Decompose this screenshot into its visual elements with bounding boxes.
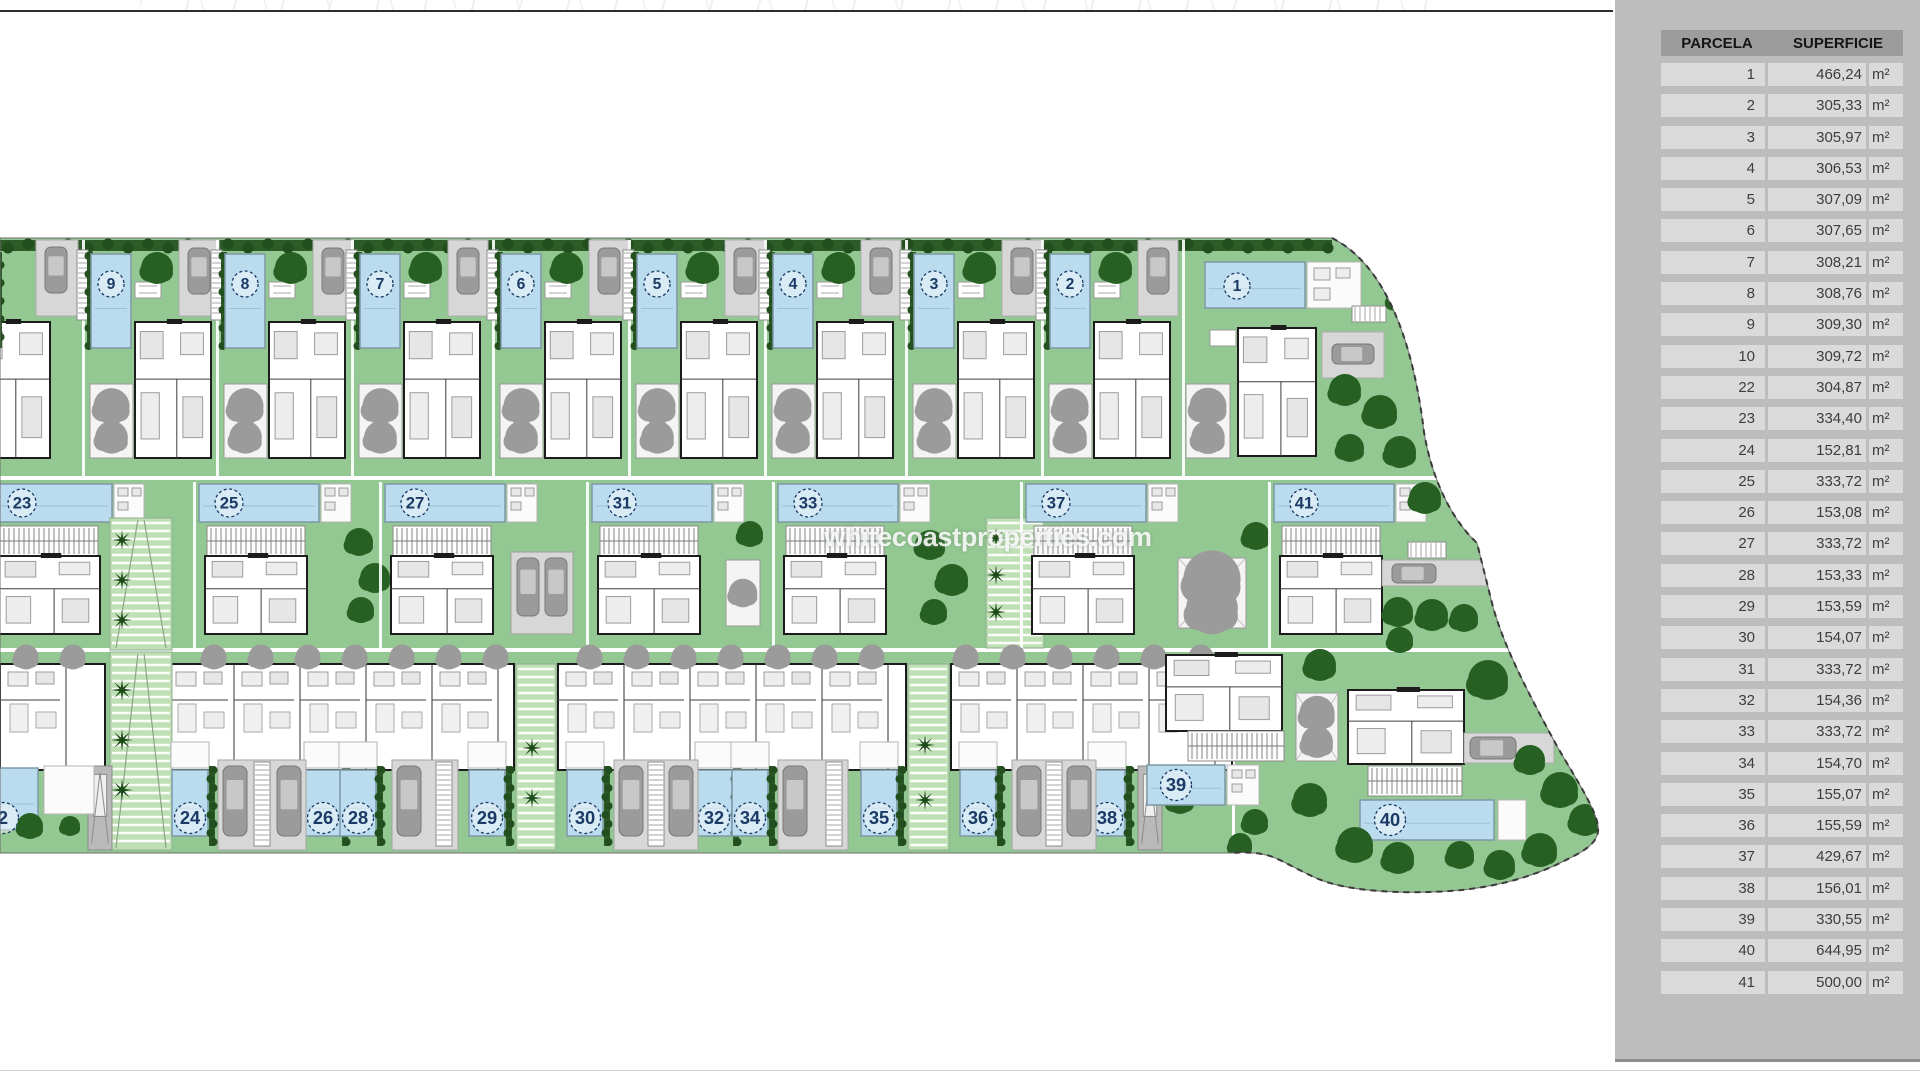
parcel-label: 26 — [308, 803, 339, 834]
parcel-label: 2 — [1057, 271, 1083, 297]
table-row: 40644,95m² — [1661, 939, 1903, 962]
table-row: 28153,33m² — [1661, 564, 1903, 587]
parcel-label: 4 — [780, 271, 806, 297]
parcela-cell: 5 — [1661, 188, 1765, 211]
car-icon — [322, 248, 344, 294]
palm-tree-icon — [111, 729, 133, 751]
superficie-cell: 304,87 — [1768, 376, 1866, 399]
palm-tree-icon — [915, 790, 935, 810]
superficie-cell: 308,76 — [1768, 282, 1866, 305]
palm-tree-icon — [112, 570, 132, 590]
parcel-label: 23 — [8, 489, 36, 517]
superficie-cell: 154,07 — [1768, 626, 1866, 649]
svg-text:9: 9 — [107, 276, 116, 293]
unit-cell: m² — [1869, 126, 1903, 149]
unit-cell: m² — [1869, 595, 1903, 618]
unit-cell: m² — [1869, 282, 1903, 305]
table-row: 3305,97m² — [1661, 126, 1903, 149]
superficie-cell: 429,67 — [1768, 845, 1866, 868]
col-header-parcela: PARCELA — [1661, 35, 1773, 52]
parcela-cell: 40 — [1661, 939, 1765, 962]
parcela-table: PARCELA SUPERFICIE 1466,24m²2305,33m²330… — [1661, 30, 1903, 1002]
parcel-label: 41 — [1290, 489, 1318, 517]
car-icon — [1470, 737, 1516, 759]
unit-cell: m² — [1869, 345, 1903, 368]
parcela-cell: 30 — [1661, 626, 1765, 649]
svg-text:3: 3 — [930, 276, 939, 293]
parcela-cell: 34 — [1661, 752, 1765, 775]
parcel-label: 6 — [508, 271, 534, 297]
svg-text:8: 8 — [241, 276, 250, 293]
parcela-cell: 38 — [1661, 877, 1765, 900]
svg-text:31: 31 — [613, 493, 632, 512]
unit-cell: m² — [1869, 251, 1903, 274]
parcel-label: 7 — [367, 271, 393, 297]
unit-cell: m² — [1869, 219, 1903, 242]
table-row: 10309,72m² — [1661, 345, 1903, 368]
car-icon — [734, 248, 756, 294]
parcela-cell: 2 — [1661, 94, 1765, 117]
svg-text:35: 35 — [869, 807, 889, 828]
palm-tree-icon — [111, 679, 133, 701]
pool — [1205, 262, 1305, 308]
unit-cell: m² — [1869, 501, 1903, 524]
svg-text:39: 39 — [1166, 774, 1186, 795]
parcela-cell: 28 — [1661, 564, 1765, 587]
parcel-label: 35 — [864, 803, 895, 834]
unit-cell: m² — [1869, 188, 1903, 211]
unit-cell: m² — [1869, 658, 1903, 681]
site-plan: 9876543212325273133374124262829303234353… — [0, 0, 1615, 1080]
unit-cell: m² — [1869, 814, 1903, 837]
svg-text:5: 5 — [653, 276, 662, 293]
superficie-cell: 154,70 — [1768, 752, 1866, 775]
superficie-cell: 333,72 — [1768, 720, 1866, 743]
superficie-cell: 305,33 — [1768, 94, 1866, 117]
parcela-cell: 39 — [1661, 908, 1765, 931]
parcel-label: 36 — [963, 803, 994, 834]
svg-text:34: 34 — [740, 807, 761, 828]
svg-text:25: 25 — [220, 493, 239, 512]
parcela-cell: 3 — [1661, 126, 1765, 149]
pool — [360, 254, 400, 348]
svg-text:41: 41 — [1295, 493, 1314, 512]
parcel-label: 33 — [794, 489, 822, 517]
parcel-label: 37 — [1042, 489, 1070, 517]
unit-cell: m² — [1869, 313, 1903, 336]
car-icon — [188, 248, 210, 294]
parcela-cell: 1 — [1661, 63, 1765, 86]
parcel-label: 1 — [1224, 273, 1250, 299]
parcela-cell: 25 — [1661, 470, 1765, 493]
table-row: 22304,87m² — [1661, 376, 1903, 399]
superficie-cell: 156,01 — [1768, 877, 1866, 900]
car-icon — [783, 766, 807, 836]
car-icon — [545, 558, 567, 616]
superficie-cell: 154,36 — [1768, 689, 1866, 712]
table-header-row: PARCELA SUPERFICIE — [1661, 30, 1903, 56]
superficie-cell: 308,21 — [1768, 251, 1866, 274]
svg-text:29: 29 — [477, 807, 497, 828]
palm-tree-icon — [986, 565, 1006, 585]
unit-cell: m² — [1869, 720, 1903, 743]
table-row: 4306,53m² — [1661, 157, 1903, 180]
superficie-cell: 305,97 — [1768, 126, 1866, 149]
svg-text:38: 38 — [1097, 807, 1117, 828]
parcela-cell: 36 — [1661, 814, 1765, 837]
pool — [773, 254, 813, 348]
parcela-cell: 23 — [1661, 407, 1765, 430]
parcela-cell: 9 — [1661, 313, 1765, 336]
car-icon — [277, 766, 301, 836]
svg-text:23: 23 — [13, 493, 32, 512]
svg-text:2: 2 — [0, 807, 8, 828]
palm-tree-icon — [522, 738, 542, 758]
bottom-rule — [0, 1070, 1920, 1071]
table-row: 37429,67m² — [1661, 845, 1903, 868]
parcela-cell: 32 — [1661, 689, 1765, 712]
palm-tree-icon — [112, 530, 132, 550]
palm-tree-icon — [986, 602, 1006, 622]
table-row: 35155,07m² — [1661, 783, 1903, 806]
car-icon — [517, 558, 539, 616]
svg-text:40: 40 — [1380, 809, 1400, 830]
parcela-cell: 37 — [1661, 845, 1765, 868]
unit-cell: m² — [1869, 939, 1903, 962]
table-row: 32154,36m² — [1661, 689, 1903, 712]
parcela-cell: 22 — [1661, 376, 1765, 399]
table-row: 5307,09m² — [1661, 188, 1903, 211]
table-row: 41500,00m² — [1661, 971, 1903, 994]
palm-tree-icon — [986, 528, 1006, 548]
svg-text:2: 2 — [1066, 276, 1075, 293]
table-row: 8308,76m² — [1661, 282, 1903, 305]
parcel-label: 25 — [215, 489, 243, 517]
svg-text:24: 24 — [180, 807, 201, 828]
parcel-label: 5 — [644, 271, 670, 297]
car-icon — [1147, 248, 1169, 294]
parcel-label: 27 — [401, 489, 429, 517]
table-row: 30154,07m² — [1661, 626, 1903, 649]
palm-tree-icon — [915, 735, 935, 755]
unit-cell: m² — [1869, 532, 1903, 555]
table-row: 34154,70m² — [1661, 752, 1903, 775]
unit-cell: m² — [1869, 877, 1903, 900]
parcel-label: 30 — [570, 803, 601, 834]
table-row: 27333,72m² — [1661, 532, 1903, 555]
table-row: 6307,65m² — [1661, 219, 1903, 242]
parcel-label: 29 — [472, 803, 503, 834]
table-row: 24152,81m² — [1661, 439, 1903, 462]
pool — [637, 254, 677, 348]
superficie-cell: 466,24 — [1768, 63, 1866, 86]
car-icon — [1067, 766, 1091, 836]
car-icon — [397, 766, 421, 836]
table-row: 25333,72m² — [1661, 470, 1903, 493]
col-header-superficie: SUPERFICIE — [1773, 35, 1903, 52]
parcel-label: 39 — [1161, 770, 1192, 801]
svg-text:37: 37 — [1047, 493, 1066, 512]
table-body: 1466,24m²2305,33m²3305,97m²4306,53m²5307… — [1661, 63, 1903, 994]
parcel-label: 28 — [343, 803, 374, 834]
superficie-cell: 153,33 — [1768, 564, 1866, 587]
svg-text:4: 4 — [789, 276, 798, 293]
superficie-cell: 155,07 — [1768, 783, 1866, 806]
parcel-label: 3 — [921, 271, 947, 297]
car-icon — [457, 248, 479, 294]
superficie-cell: 153,08 — [1768, 501, 1866, 524]
car-icon — [1011, 248, 1033, 294]
palm-tree-icon — [112, 610, 132, 630]
superficie-cell: 307,65 — [1768, 219, 1866, 242]
pool — [501, 254, 541, 348]
table-row: 36155,59m² — [1661, 814, 1903, 837]
parcela-cell: 7 — [1661, 251, 1765, 274]
unit-cell: m² — [1869, 971, 1903, 994]
superficie-cell: 306,53 — [1768, 157, 1866, 180]
pool — [225, 254, 265, 348]
table-row: 39330,55m² — [1661, 908, 1903, 931]
svg-text:6: 6 — [517, 276, 526, 293]
superficie-cell: 333,72 — [1768, 470, 1866, 493]
unit-cell: m² — [1869, 94, 1903, 117]
svg-text:27: 27 — [406, 493, 425, 512]
parcela-cell: 26 — [1661, 501, 1765, 524]
parcela-cell: 10 — [1661, 345, 1765, 368]
table-row: 7308,21m² — [1661, 251, 1903, 274]
unit-cell: m² — [1869, 689, 1903, 712]
parcel-label: 34 — [735, 803, 766, 834]
unit-cell: m² — [1869, 63, 1903, 86]
parcel-label: 32 — [699, 803, 730, 834]
palm-tree-icon — [111, 779, 133, 801]
parcela-table-panel: PARCELA SUPERFICIE 1466,24m²2305,33m²330… — [1615, 0, 1920, 1062]
car-icon — [619, 766, 643, 836]
table-row: 1466,24m² — [1661, 63, 1903, 86]
table-row: 26153,08m² — [1661, 501, 1903, 524]
parcel-label: 40 — [1375, 805, 1406, 836]
car-icon — [1332, 344, 1374, 364]
table-row: 38156,01m² — [1661, 877, 1903, 900]
parcela-cell: 33 — [1661, 720, 1765, 743]
svg-text:28: 28 — [348, 807, 368, 828]
pool — [914, 254, 954, 348]
unit-cell: m² — [1869, 407, 1903, 430]
parcela-cell: 41 — [1661, 971, 1765, 994]
parcela-cell: 35 — [1661, 783, 1765, 806]
table-row: 33333,72m² — [1661, 720, 1903, 743]
superficie-cell: 152,81 — [1768, 439, 1866, 462]
svg-text:1: 1 — [1233, 278, 1242, 295]
unit-cell: m² — [1869, 439, 1903, 462]
table-row: 23334,40m² — [1661, 407, 1903, 430]
svg-text:30: 30 — [575, 807, 595, 828]
site-plan-canvas: 9876543212325273133374124262829303234353… — [0, 0, 1920, 1080]
unit-cell: m² — [1869, 845, 1903, 868]
unit-cell: m² — [1869, 626, 1903, 649]
car-icon — [1392, 564, 1436, 583]
superficie-cell: 500,00 — [1768, 971, 1866, 994]
superficie-cell: 309,72 — [1768, 345, 1866, 368]
unit-cell: m² — [1869, 376, 1903, 399]
superficie-cell: 334,40 — [1768, 407, 1866, 430]
parcela-cell: 29 — [1661, 595, 1765, 618]
svg-text:32: 32 — [704, 807, 724, 828]
parcel-label: 31 — [608, 489, 636, 517]
car-icon — [223, 766, 247, 836]
parcela-cell: 24 — [1661, 439, 1765, 462]
table-row: 29153,59m² — [1661, 595, 1903, 618]
parcel-label: 24 — [175, 803, 206, 834]
pool — [91, 254, 131, 348]
unit-cell: m² — [1869, 564, 1903, 587]
superficie-cell: 153,59 — [1768, 595, 1866, 618]
unit-cell: m² — [1869, 752, 1903, 775]
table-row: 31333,72m² — [1661, 658, 1903, 681]
superficie-cell: 644,95 — [1768, 939, 1866, 962]
unit-cell: m² — [1869, 157, 1903, 180]
parcela-cell: 31 — [1661, 658, 1765, 681]
parcela-cell: 27 — [1661, 532, 1765, 555]
unit-cell: m² — [1869, 783, 1903, 806]
parcela-cell: 8 — [1661, 282, 1765, 305]
superficie-cell: 330,55 — [1768, 908, 1866, 931]
table-row: 9309,30m² — [1661, 313, 1903, 336]
superficie-cell: 309,30 — [1768, 313, 1866, 336]
car-icon — [1017, 766, 1041, 836]
unit-cell: m² — [1869, 470, 1903, 493]
superficie-cell: 307,09 — [1768, 188, 1866, 211]
superficie-cell: 333,72 — [1768, 532, 1866, 555]
parcela-cell: 4 — [1661, 157, 1765, 180]
pool — [1050, 254, 1090, 348]
svg-text:33: 33 — [799, 493, 818, 512]
parcel-label: 9 — [98, 271, 124, 297]
svg-text:36: 36 — [968, 807, 988, 828]
palm-tree-icon — [522, 788, 542, 808]
car-icon — [598, 248, 620, 294]
superficie-cell: 333,72 — [1768, 658, 1866, 681]
table-row: 2305,33m² — [1661, 94, 1903, 117]
superficie-cell: 155,59 — [1768, 814, 1866, 837]
car-icon — [870, 248, 892, 294]
car-icon — [45, 247, 67, 293]
car-icon — [669, 766, 693, 836]
svg-text:7: 7 — [376, 276, 385, 293]
svg-text:26: 26 — [313, 807, 333, 828]
unit-cell: m² — [1869, 908, 1903, 931]
parcela-cell: 6 — [1661, 219, 1765, 242]
parcel-label: 8 — [232, 271, 258, 297]
